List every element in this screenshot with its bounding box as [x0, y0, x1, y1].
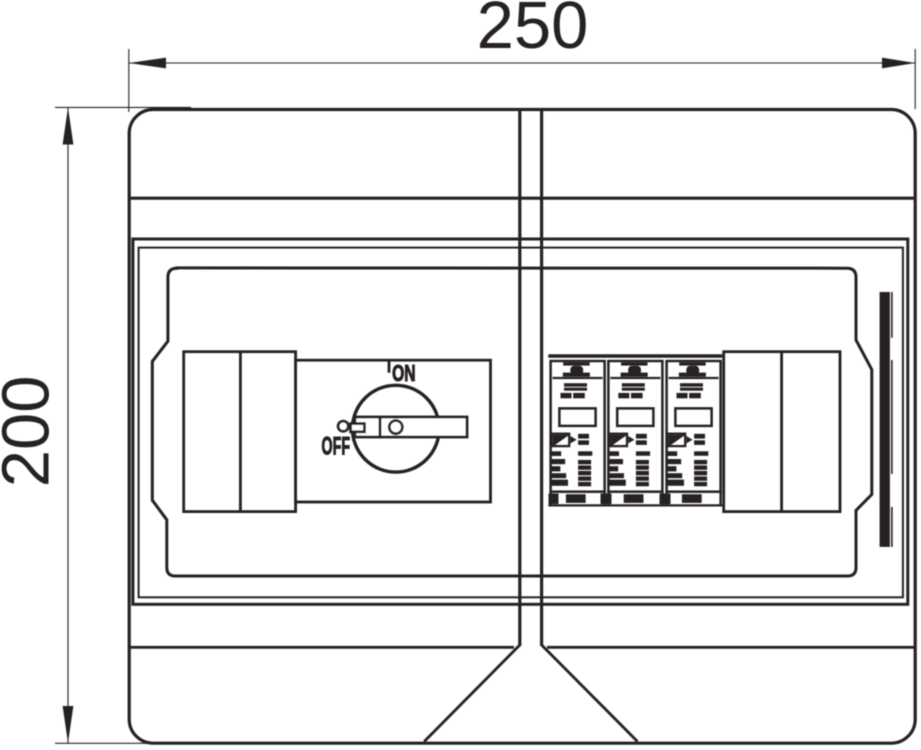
svg-text:250: 250 — [477, 0, 589, 63]
svg-text:ON: ON — [392, 361, 415, 387]
svg-text:200: 200 — [0, 376, 64, 488]
svg-text:OFF: OFF — [322, 434, 350, 461]
